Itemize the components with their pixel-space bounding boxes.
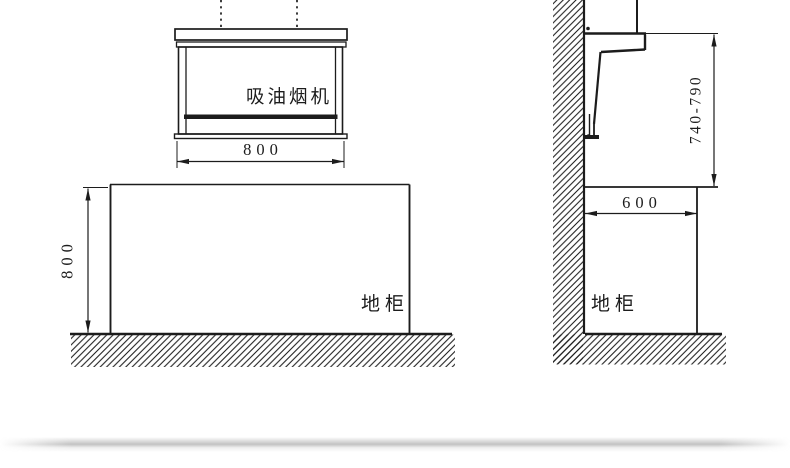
arrow-down-icon bbox=[711, 174, 716, 186]
dimension-hood-height-range: 740-790 bbox=[646, 34, 718, 187]
front-view: 吸油烟机 800 地柜 bbox=[58, 0, 456, 367]
wall-section bbox=[553, 0, 584, 364]
cabinet-height-value: 800 bbox=[58, 239, 77, 279]
diagram-canvas: 吸油烟机 800 地柜 bbox=[0, 0, 790, 468]
floor-side bbox=[553, 334, 726, 365]
arrow-right-icon bbox=[685, 211, 697, 216]
floor-front bbox=[70, 334, 455, 367]
hood-label: 吸油烟机 bbox=[246, 87, 332, 108]
hood-height-range-value: 740-790 bbox=[688, 75, 705, 144]
bracket-screw-icon bbox=[586, 134, 590, 138]
page-separator-shadow bbox=[0, 437, 790, 452]
arrow-left-icon bbox=[177, 159, 189, 164]
arrow-down-icon bbox=[85, 321, 90, 333]
dimension-hood-width: 800 bbox=[177, 140, 344, 168]
range-hood-side bbox=[585, 0, 647, 139]
dimension-counter-depth: 600 bbox=[585, 193, 697, 216]
cabinet-label-side: 地柜 bbox=[591, 293, 639, 315]
arrow-up-icon bbox=[711, 35, 716, 47]
mounting-screw-icon bbox=[586, 27, 590, 31]
duct-dotted-lines bbox=[221, 0, 297, 27]
arrow-right-icon bbox=[332, 159, 344, 164]
installation-diagram: 吸油烟机 800 地柜 bbox=[0, 0, 790, 468]
side-view: 740-790 600 地柜 bbox=[553, 0, 726, 365]
cabinet-label-front: 地柜 bbox=[361, 293, 409, 315]
arrow-up-icon bbox=[85, 189, 90, 201]
hood-width-value: 800 bbox=[243, 140, 283, 159]
range-hood-front bbox=[175, 29, 348, 139]
arrow-left-icon bbox=[585, 211, 597, 216]
dimension-cabinet-height: 800 bbox=[58, 188, 109, 333]
counter-depth-value: 600 bbox=[622, 193, 662, 212]
